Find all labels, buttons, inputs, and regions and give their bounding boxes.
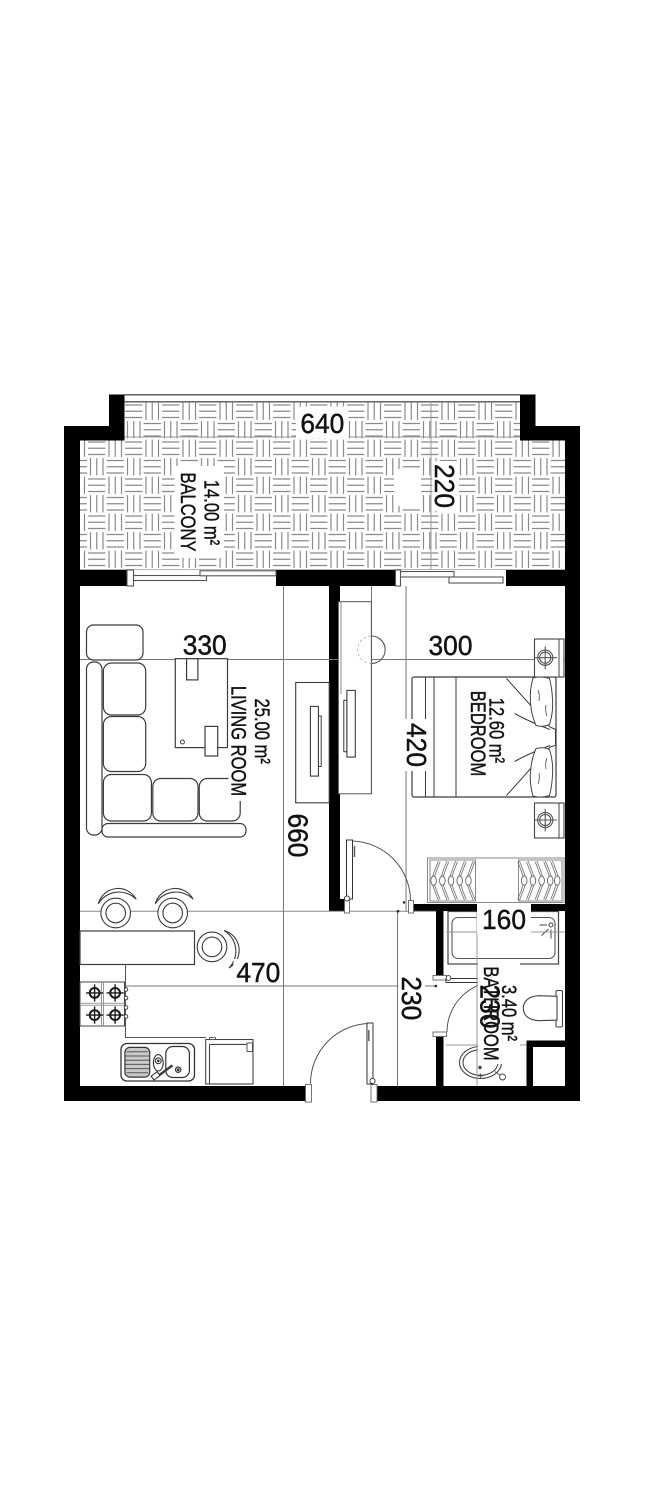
svg-text:14.00 m²: 14.00 m² (199, 480, 223, 546)
svg-text:BALCONY: BALCONY (176, 472, 200, 551)
svg-text:160: 160 (482, 903, 526, 935)
svg-text:230: 230 (396, 976, 428, 1020)
svg-text:330: 330 (183, 629, 227, 661)
svg-text:300: 300 (429, 629, 473, 661)
svg-text:640: 640 (300, 407, 344, 439)
svg-text:25.00 m²: 25.00 m² (250, 699, 274, 765)
svg-text:230: 230 (475, 985, 507, 1029)
svg-text:660: 660 (282, 813, 314, 857)
svg-text:LIVING ROOM: LIVING ROOM (226, 686, 250, 796)
svg-text:12.60 m²: 12.60 m² (484, 698, 508, 764)
svg-text:220: 220 (429, 464, 461, 508)
svg-text:420: 420 (401, 723, 433, 767)
svg-text:470: 470 (236, 956, 280, 988)
